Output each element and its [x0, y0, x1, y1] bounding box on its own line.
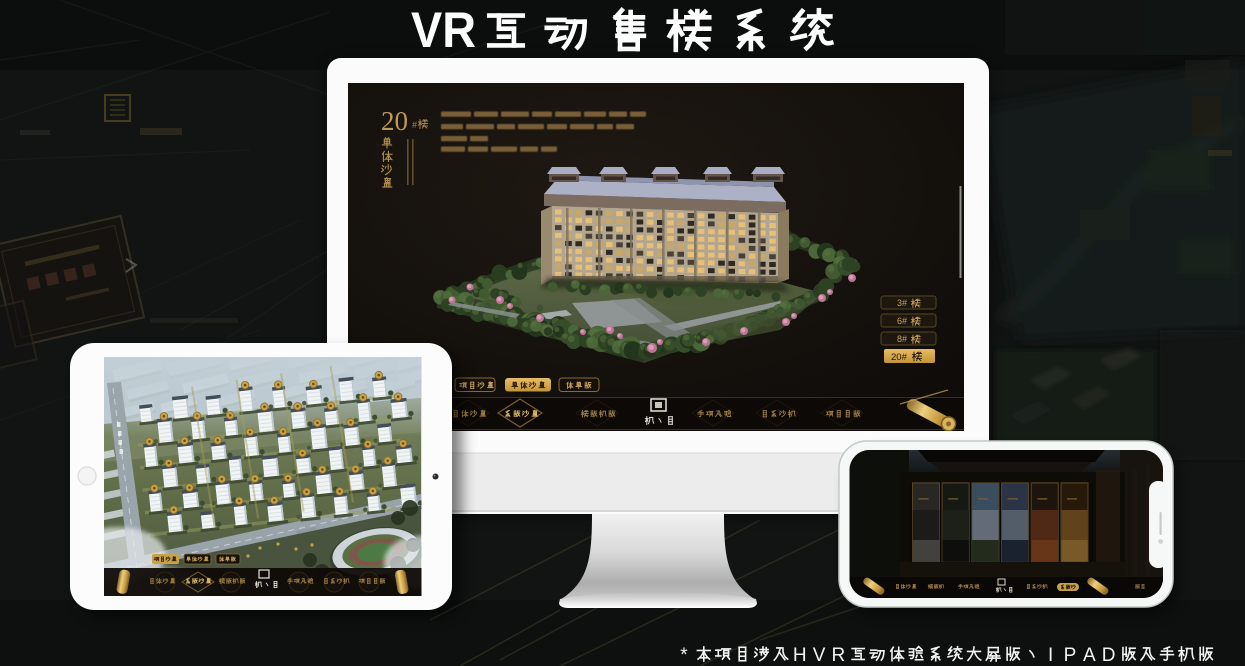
- svg-text:20: 20: [381, 106, 408, 136]
- svg-text:VR: VR: [411, 2, 476, 58]
- svg-text:*: *: [680, 645, 688, 666]
- svg-text:I: I: [1048, 645, 1053, 666]
- svg-text:3#: 3#: [897, 298, 907, 308]
- svg-text:D: D: [1102, 645, 1116, 666]
- svg-text:V: V: [813, 645, 826, 666]
- svg-text:R: R: [832, 645, 846, 666]
- svg-text:20#: 20#: [891, 352, 908, 363]
- svg-text:A: A: [1083, 645, 1096, 666]
- svg-text:8#: 8#: [897, 334, 907, 344]
- svg-text:P: P: [1064, 645, 1077, 666]
- svg-text:6#: 6#: [897, 316, 907, 326]
- svg-text:#: #: [412, 120, 417, 130]
- svg-text:H: H: [793, 645, 807, 666]
